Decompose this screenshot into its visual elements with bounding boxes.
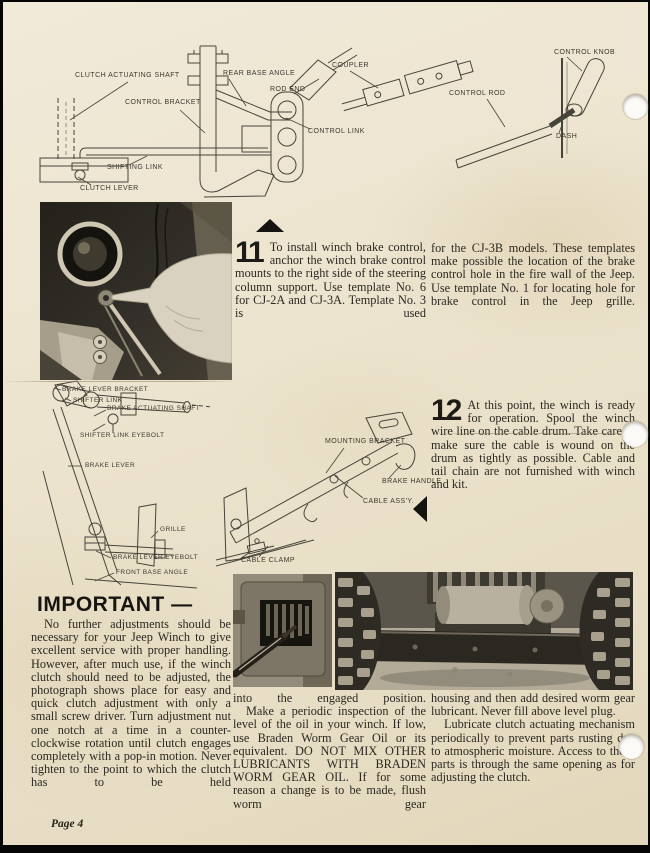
label-control-link: CONTROL LINK xyxy=(308,128,365,135)
important-body: No further adjustments should be necessa… xyxy=(31,618,231,790)
label-clutch-lever: CLUTCH LEVER xyxy=(80,185,139,192)
left-triangle-marker-icon xyxy=(413,496,427,522)
label-brake-lever-eyebolt: BRAKE LEVER EYEBOLT xyxy=(113,554,198,561)
bottom-left-paragraph: Make a periodic inspection of the level … xyxy=(233,705,426,811)
label-control-knob: CONTROL KNOB xyxy=(554,49,615,56)
important-heading: IMPORTANT — xyxy=(37,593,193,617)
photo-screwdriver-adjustment xyxy=(233,574,332,687)
label-cable-assy: CABLE ASS'Y. xyxy=(363,498,414,505)
winch-bracket-diagram-artwork xyxy=(216,412,428,572)
label-brake-lever-bracket: BRAKE LEVER BRACKET xyxy=(62,386,148,393)
step-11-number: 11 xyxy=(235,241,263,265)
linkage-diagram-artwork xyxy=(28,30,640,210)
scanned-manual-page: CLUTCH ACTUATING SHAFT REAR BASE ANGLE C… xyxy=(0,0,650,853)
step-11-column-2: for the CJ-3B models. These templates ma… xyxy=(431,242,635,308)
step-12-column: 12 At this point, the winch is ready for… xyxy=(431,399,635,491)
bottom-column-left: into the engaged position. Make a period… xyxy=(233,692,426,811)
bottom-right-continuation: housing and then add desired worm gear l… xyxy=(431,692,635,718)
photo-hand-pointing-adjustment xyxy=(40,202,232,380)
label-rear-base-angle: REAR BASE ANGLE xyxy=(223,70,295,77)
step-11-text-1: To install winch brake control, anchor t… xyxy=(235,240,426,320)
label-front-base-angle: FRONT BASE ANGLE xyxy=(116,569,188,576)
paper-background: CLUTCH ACTUATING SHAFT REAR BASE ANGLE C… xyxy=(3,2,648,845)
label-control-bracket: CONTROL BRACKET xyxy=(125,99,201,106)
up-triangle-marker-icon xyxy=(256,219,284,232)
step-12-text: At this point, the winch is ready for op… xyxy=(431,398,635,491)
label-cable-clamp: CABLE CLAMP xyxy=(241,557,295,564)
fold-crease-left xyxy=(3,381,235,382)
step-11-text-2: for the CJ-3B models. These templates ma… xyxy=(431,241,635,308)
bottom-column-right: housing and then add desired worm gear l… xyxy=(431,692,635,784)
label-grille: GRILLE xyxy=(160,526,186,533)
label-brake-lever: BRAKE LEVER xyxy=(85,462,135,469)
label-coupler: COUPLER xyxy=(332,62,369,69)
label-shifting-link: SHIFTING LINK xyxy=(107,164,163,171)
important-paragraph: No further adjustments should be necessa… xyxy=(31,618,231,790)
label-dash: DASH xyxy=(556,133,577,140)
label-shifter-link: SHIFTER LINK xyxy=(73,397,122,404)
label-mounting-bracket: MOUNTING BRACKET xyxy=(325,438,405,445)
label-clutch-actuating-shaft: CLUTCH ACTUATING SHAFT xyxy=(75,72,180,79)
hole-punch-top xyxy=(623,94,648,119)
hole-punch-middle xyxy=(622,421,648,447)
label-shifter-link-eyebolt: SHIFTER LINK EYEBOLT xyxy=(80,432,164,439)
step-11-column-1: 11 To install winch brake control, ancho… xyxy=(235,241,426,320)
fold-crease-right xyxy=(427,433,650,434)
hole-punch-bottom xyxy=(619,734,644,759)
label-control-rod: CONTROL ROD xyxy=(449,90,505,97)
label-rod-end: ROD END xyxy=(270,86,305,93)
bottom-right-paragraph: Lubricate clutch actuating mechanism per… xyxy=(431,718,635,784)
page-number: Page 4 xyxy=(51,818,83,830)
photo-jeep-winch-front xyxy=(335,572,633,690)
label-brake-actuating-shaft: BRAKE ACTUATING SHAFT xyxy=(107,405,200,412)
step-12-number: 12 xyxy=(431,399,460,423)
